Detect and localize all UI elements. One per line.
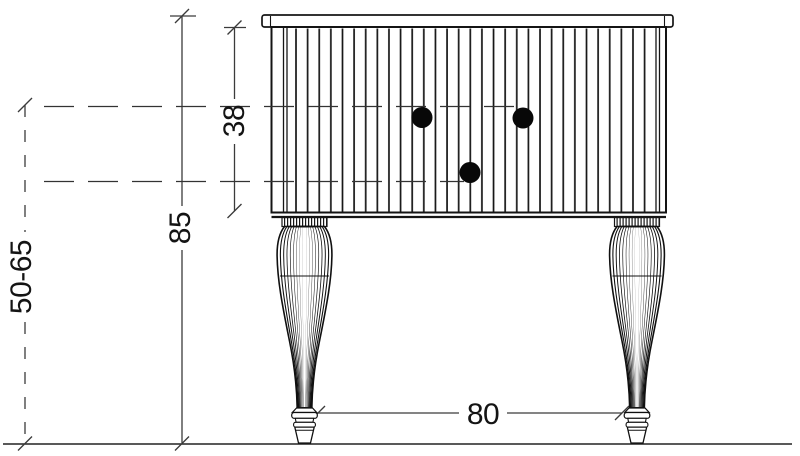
leg-left: [277, 218, 332, 444]
knob-left: [412, 107, 433, 128]
countertop: [262, 15, 673, 27]
dimension-label-floor-range: 50-65: [7, 240, 37, 314]
knob-right: [513, 108, 534, 129]
leg-right: [610, 218, 665, 444]
cabinet: [262, 15, 673, 217]
dimension-label-box-height: 38: [220, 105, 250, 137]
technical-drawing-canvas: 38 85 50-65 80: [0, 0, 800, 456]
dimension-label-total-height: 85: [166, 212, 196, 244]
fluted-front-panel: [292, 29, 652, 212]
cabinet-front-elevation: [0, 0, 800, 456]
dimension-label-width: 80: [467, 400, 499, 430]
knob-center: [460, 162, 481, 183]
